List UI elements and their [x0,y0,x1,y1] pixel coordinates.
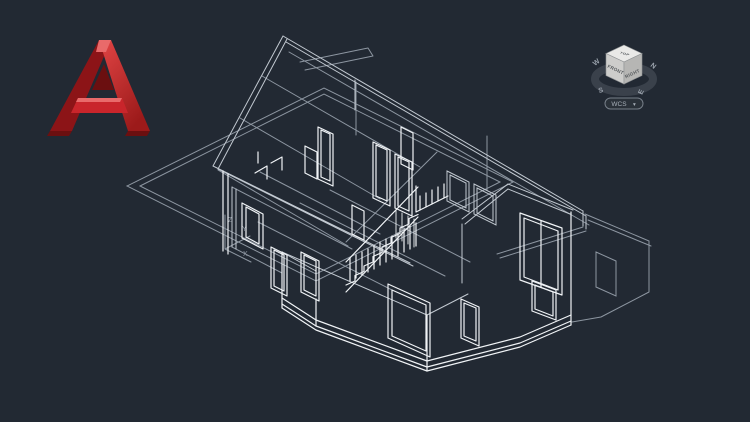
compass-west[interactable]: W [592,58,602,68]
autocad-logo [42,24,162,144]
ucs-x-label: X [243,251,248,258]
wireframe-mid-lines [213,36,586,315]
drawing-viewport[interactable]: Z Y X [0,0,750,422]
logo-base-right [125,131,150,136]
wcs-label: WCS [611,101,627,108]
logo-crossbar-highlight [76,98,122,102]
logo-base-left [47,131,72,136]
viewcube[interactable]: W N S E TOP FRONT RIGHT WCS ▾ [570,30,680,125]
wireframe-bright-lines [223,127,571,371]
wcs-selector[interactable]: WCS ▾ [605,98,643,109]
caret-down-icon: ▾ [633,102,636,108]
